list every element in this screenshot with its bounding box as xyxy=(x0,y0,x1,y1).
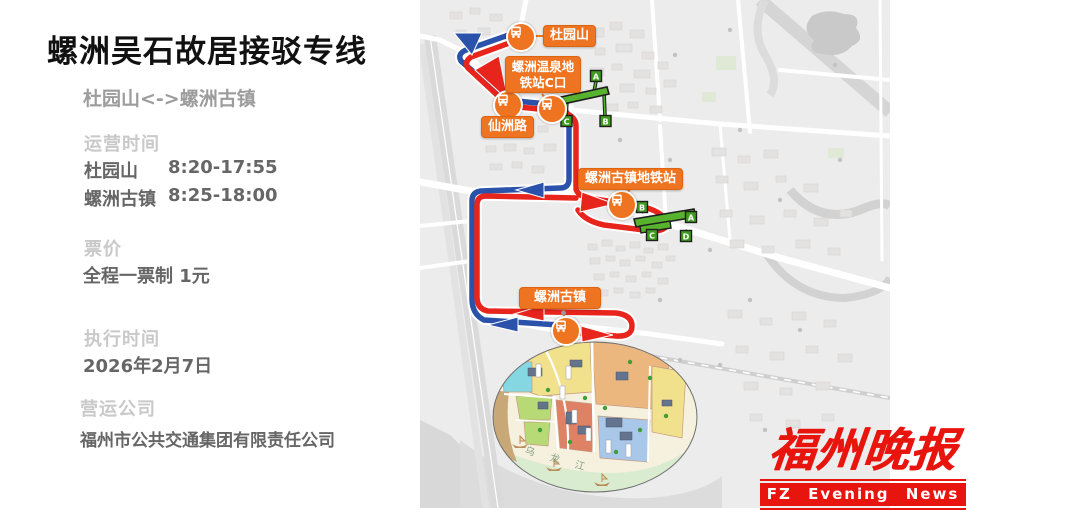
bus-stop-icon-guzhen-metro xyxy=(607,190,637,220)
bus-icon xyxy=(553,318,569,334)
stop-label-guzhen: 螺洲古镇 xyxy=(519,287,601,309)
stop-label-duyuanshan: 杜园山 xyxy=(543,25,596,47)
exit-letter: A xyxy=(593,73,600,82)
bus-icon xyxy=(495,92,511,108)
operating-row: 螺洲古镇 8:25-18:00 xyxy=(84,185,278,211)
exit-letter: A xyxy=(688,214,695,223)
effective-date-label: 执行时间 xyxy=(84,325,160,351)
operating-hours-label: 运营时间 xyxy=(84,130,160,156)
fare-value: 全程一票制 1元 xyxy=(83,262,210,288)
operator-label: 营运公司 xyxy=(80,395,156,421)
bus-icon xyxy=(508,24,524,40)
page-title: 螺洲吴石故居接驳专线 xyxy=(47,26,367,71)
connector-dot xyxy=(561,311,566,316)
logo-rule xyxy=(760,479,966,481)
logo-rule xyxy=(760,508,966,510)
fare-label: 票价 xyxy=(84,235,122,261)
operator-value: 福州市公共交通集团有限责任公司 xyxy=(80,426,335,451)
exit-letter: C xyxy=(649,232,655,241)
logo-chinese-name: 福州晚报 xyxy=(757,423,969,477)
newspaper-logo: 福州晚报 FZ Evening News xyxy=(760,423,966,512)
stop-name: 杜园山 xyxy=(84,157,168,183)
bus-icon xyxy=(539,96,555,112)
bus-stop-icon-guzhen xyxy=(551,316,581,346)
bus-stop-icon-duyuanshan xyxy=(506,22,536,52)
exit-letter: C xyxy=(564,118,570,127)
stop-name: 螺洲古镇 xyxy=(84,185,168,211)
exit-letter: B xyxy=(639,204,645,213)
stop-label-wenquan: 螺洲温泉地铁站C口 xyxy=(505,56,581,93)
bus-stop-icon-wenquan xyxy=(537,94,567,124)
effective-date-value: 2026年2月7日 xyxy=(83,352,212,378)
stop-hours: 8:25-18:00 xyxy=(168,185,278,211)
bus-icon xyxy=(609,192,625,208)
stop-label-xianzhoulu: 仙洲路 xyxy=(481,116,534,138)
poster: 螺洲吴石故居接驳专线 杜园山<->螺洲古镇 运营时间 杜园山 8:20-17:5… xyxy=(0,0,1080,523)
exit-letter: D xyxy=(683,233,690,242)
logo-english-name: FZ Evening News xyxy=(760,483,966,506)
exit-letter: B xyxy=(602,118,608,127)
stop-label-guzhen-metro: 螺洲古镇地铁站 xyxy=(578,168,683,190)
route-endpoints: 杜园山<->螺洲古镇 xyxy=(83,84,256,111)
operating-row: 杜园山 8:20-17:55 xyxy=(84,157,278,183)
stop-hours: 8:20-17:55 xyxy=(168,157,278,183)
